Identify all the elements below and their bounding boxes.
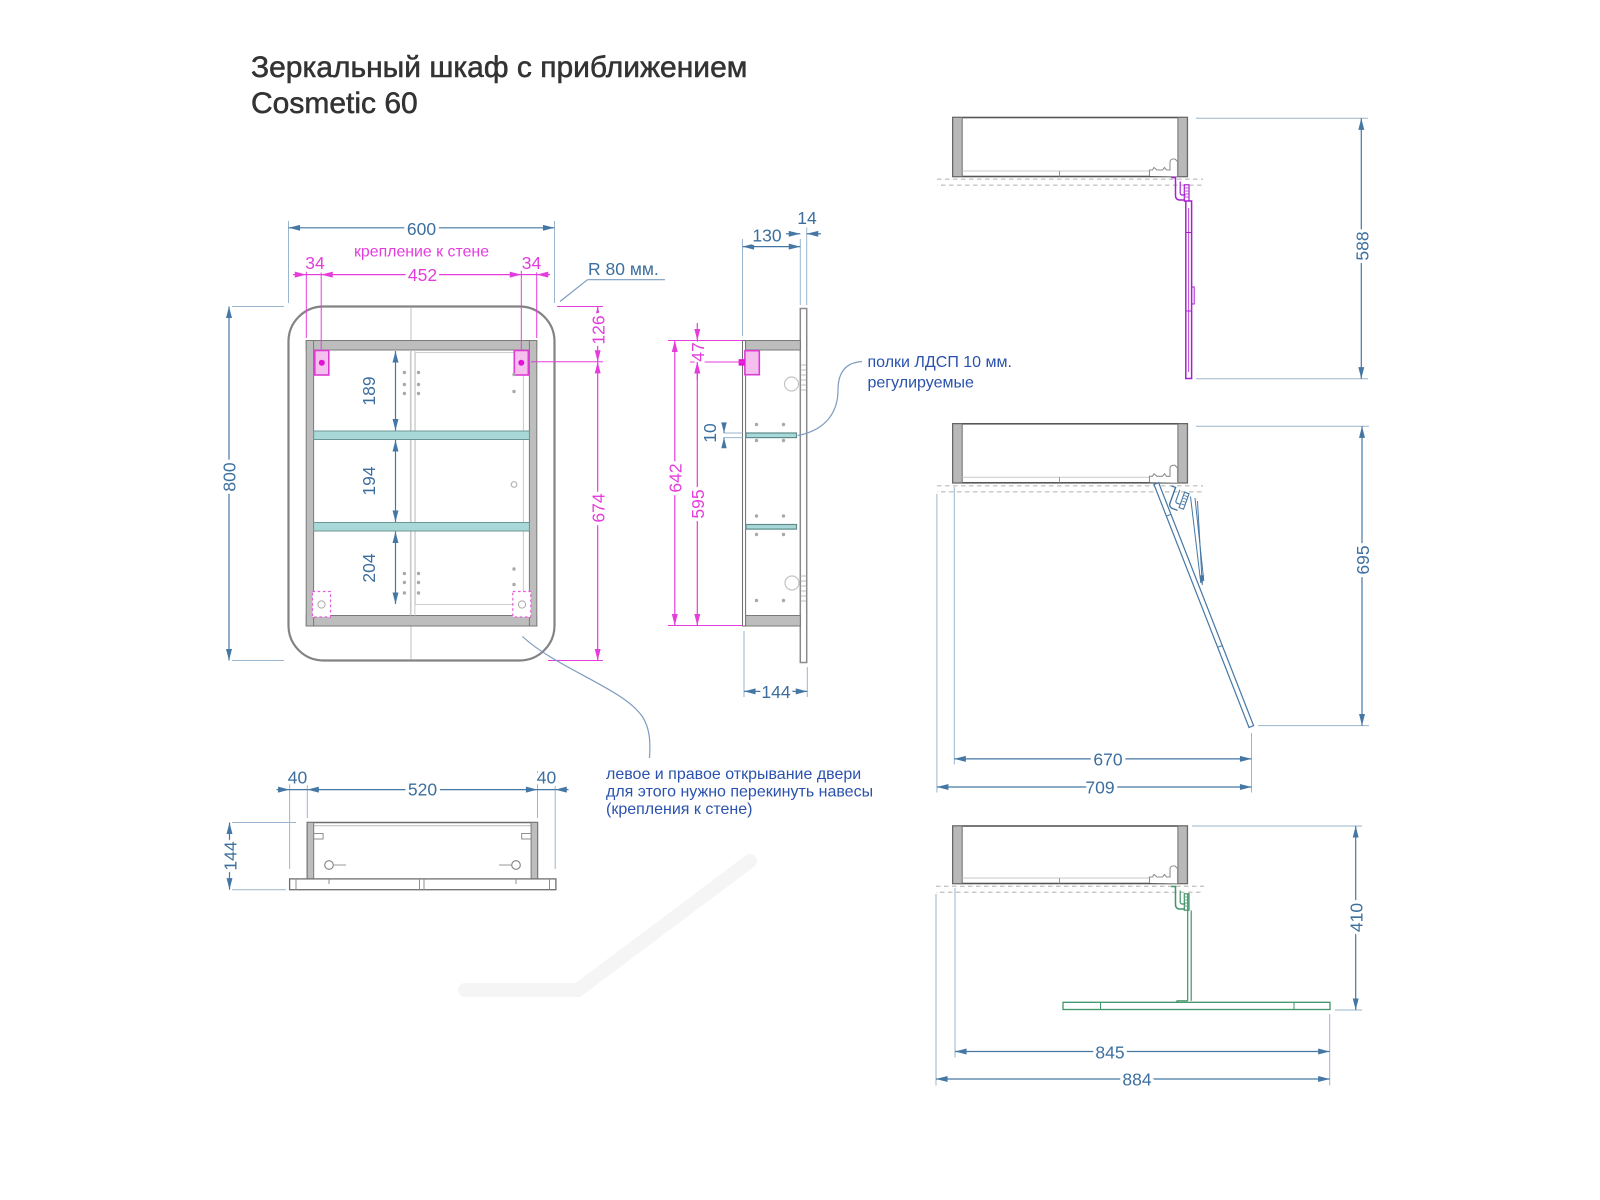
svg-text:10: 10 bbox=[700, 423, 720, 443]
svg-text:520: 520 bbox=[408, 780, 437, 800]
svg-text:регулируемые: регулируемые bbox=[868, 375, 974, 392]
svg-text:194: 194 bbox=[359, 466, 379, 495]
svg-text:40: 40 bbox=[537, 768, 557, 788]
svg-text:130: 130 bbox=[752, 226, 781, 246]
svg-text:для этого нужно перекинуть нав: для этого нужно перекинуть навесы bbox=[606, 784, 873, 801]
svg-text:34: 34 bbox=[305, 253, 325, 273]
svg-text:144: 144 bbox=[221, 841, 241, 870]
svg-text:(крепления к стене): (крепления к стене) bbox=[606, 801, 752, 818]
svg-text:Cosmetic 60: Cosmetic 60 bbox=[251, 87, 418, 120]
svg-text:крепление к стене: крепление к стене bbox=[354, 244, 489, 261]
svg-text:588: 588 bbox=[1352, 231, 1372, 260]
svg-text:670: 670 bbox=[1093, 750, 1122, 770]
svg-text:452: 452 bbox=[408, 265, 437, 285]
svg-text:40: 40 bbox=[288, 768, 308, 788]
svg-text:845: 845 bbox=[1095, 1043, 1124, 1063]
svg-text:левое и правое открывание двер: левое и правое открывание двери bbox=[606, 766, 861, 783]
svg-text:R 80 мм.: R 80 мм. bbox=[588, 259, 659, 279]
svg-text:189: 189 bbox=[359, 376, 379, 405]
svg-text:695: 695 bbox=[1353, 545, 1373, 574]
svg-text:595: 595 bbox=[688, 489, 708, 518]
svg-text:884: 884 bbox=[1122, 1070, 1151, 1090]
svg-text:14: 14 bbox=[797, 208, 817, 228]
svg-text:600: 600 bbox=[407, 219, 436, 239]
svg-text:674: 674 bbox=[589, 493, 609, 522]
svg-text:34: 34 bbox=[522, 253, 542, 273]
svg-text:144: 144 bbox=[761, 682, 790, 702]
svg-text:642: 642 bbox=[666, 463, 686, 492]
svg-text:204: 204 bbox=[359, 553, 379, 582]
svg-text:709: 709 bbox=[1085, 778, 1114, 798]
svg-text:полки ЛДСП 10 мм.: полки ЛДСП 10 мм. bbox=[868, 354, 1012, 371]
svg-text:126: 126 bbox=[589, 315, 609, 344]
svg-text:47: 47 bbox=[688, 342, 708, 361]
svg-text:800: 800 bbox=[220, 462, 240, 491]
svg-text:Зеркальный шкаф с приближением: Зеркальный шкаф с приближением bbox=[251, 51, 747, 84]
svg-text:410: 410 bbox=[1347, 903, 1367, 932]
